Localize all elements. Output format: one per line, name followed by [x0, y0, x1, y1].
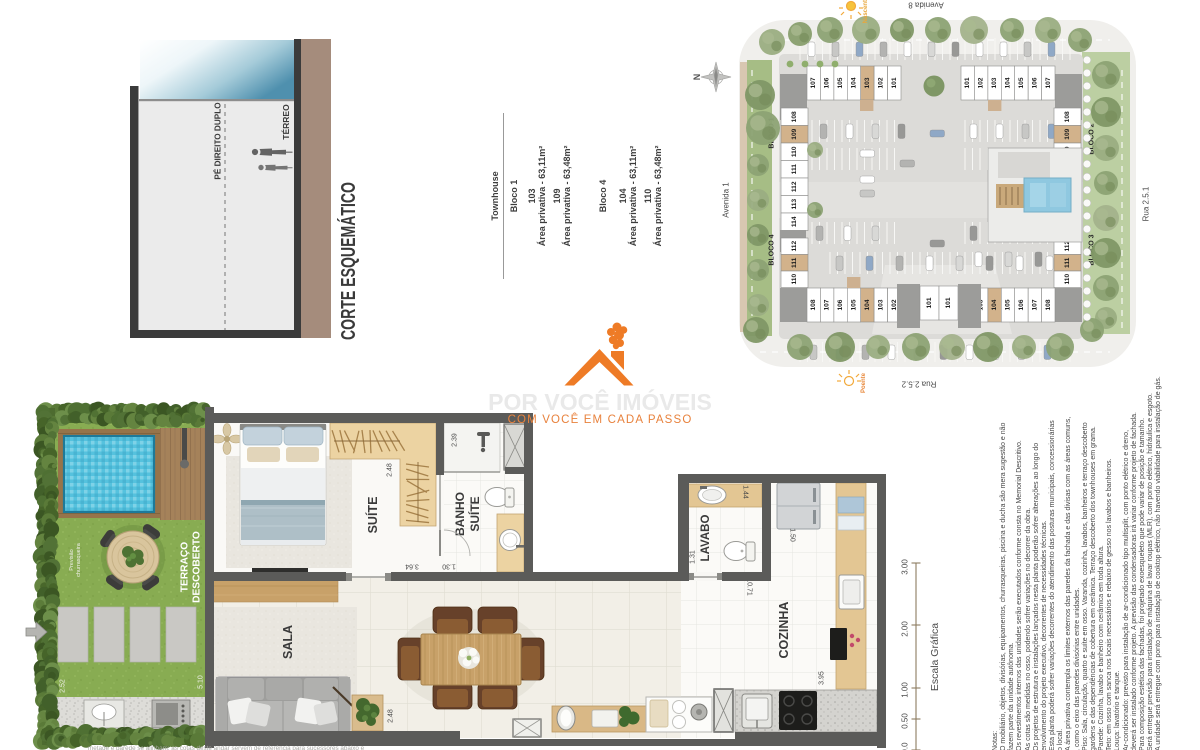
svg-text:1.30: 1.30 — [442, 563, 456, 570]
svg-text:104: 104 — [1005, 77, 1012, 88]
svg-text:101: 101 — [926, 297, 933, 308]
svg-text:105: 105 — [1005, 299, 1012, 310]
svg-text:metade e parede se alinham; as: metade e parede se alinham; as cotas des… — [88, 745, 365, 750]
svg-text:102: 102 — [877, 77, 884, 88]
svg-text:0.50: 0.50 — [901, 713, 910, 729]
svg-text:102: 102 — [978, 77, 985, 88]
svg-text:101: 101 — [891, 77, 898, 88]
svg-text:109: 109 — [1064, 128, 1071, 139]
svg-text:105: 105 — [1018, 77, 1025, 88]
svg-text:Rua 2.5.2: Rua 2.5.2 — [901, 380, 936, 389]
svg-text:111: 111 — [1064, 257, 1071, 268]
svg-text:Poente: Poente — [861, 372, 867, 393]
svg-text:107: 107 — [810, 77, 817, 88]
svg-text:Avenida 1: Avenida 1 — [722, 182, 731, 218]
svg-text:112: 112 — [791, 181, 798, 192]
svg-text:103: 103 — [877, 299, 884, 310]
svg-text:3.00: 3.00 — [901, 559, 910, 575]
svg-text:SUÍTE: SUÍTE — [365, 497, 380, 534]
svg-text:104: 104 — [864, 299, 871, 310]
svg-text:1.00: 1.00 — [901, 682, 910, 698]
svg-text:SALA: SALA — [281, 625, 295, 659]
svg-text:103: 103 — [864, 77, 871, 88]
svg-text:106: 106 — [1031, 77, 1038, 88]
svg-text:110: 110 — [791, 146, 798, 157]
svg-text:111: 111 — [791, 257, 798, 268]
svg-text:Previsão: Previsão — [69, 549, 75, 570]
svg-text:110: 110 — [1064, 274, 1071, 285]
svg-text:105: 105 — [837, 77, 844, 88]
svg-text:TÉRREO: TÉRREO — [281, 104, 291, 140]
svg-text:DESCOBERTO: DESCOBERTO — [192, 531, 203, 603]
svg-text:110: 110 — [791, 274, 798, 285]
svg-text:TERRAÇO: TERRAÇO — [180, 542, 191, 592]
svg-text:108: 108 — [1045, 299, 1052, 310]
svg-text:104: 104 — [851, 77, 858, 88]
svg-text:113: 113 — [791, 199, 798, 210]
svg-text:SUÍTE: SUÍTE — [467, 496, 482, 531]
svg-text:106: 106 — [1018, 299, 1025, 310]
svg-text:108: 108 — [791, 111, 798, 122]
svg-text:LAVABO: LAVABO — [700, 515, 712, 562]
svg-text:1.31: 1.31 — [690, 550, 697, 564]
svg-text:101: 101 — [945, 297, 952, 308]
svg-text:0.0: 0.0 — [901, 742, 910, 750]
svg-text:PÉ DIREITO DUPLO: PÉ DIREITO DUPLO — [213, 102, 223, 180]
svg-text:111: 111 — [791, 164, 798, 175]
svg-text:Nascente: Nascente — [863, 0, 869, 23]
svg-text:Avenida 8: Avenida 8 — [908, 1, 944, 10]
svg-text:1.50: 1.50 — [789, 528, 796, 542]
svg-text:108: 108 — [810, 299, 817, 310]
svg-text:104: 104 — [991, 299, 998, 310]
svg-text:106: 106 — [824, 77, 831, 88]
svg-text:Escala Gráfica: Escala Gráfica — [929, 623, 941, 691]
svg-text:107: 107 — [1031, 299, 1038, 310]
svg-text:BLOCO 4: BLOCO 4 — [769, 234, 776, 265]
svg-text:2.39: 2.39 — [452, 433, 459, 447]
svg-text:106: 106 — [837, 299, 844, 310]
svg-text:109: 109 — [791, 128, 798, 139]
svg-text:112: 112 — [791, 241, 798, 252]
svg-text:COZINHA: COZINHA — [777, 602, 791, 659]
svg-text:105: 105 — [851, 299, 858, 310]
svg-text:108: 108 — [1064, 111, 1071, 122]
svg-text:3.64: 3.64 — [405, 563, 419, 570]
svg-text:3.95: 3.95 — [819, 671, 826, 685]
svg-text:5.10: 5.10 — [198, 675, 205, 689]
svg-text:2.00: 2.00 — [901, 621, 910, 637]
svg-text:2.48: 2.48 — [387, 463, 394, 477]
svg-text:1.44: 1.44 — [742, 485, 749, 499]
svg-text:103: 103 — [991, 77, 998, 88]
svg-text:114: 114 — [791, 216, 798, 227]
svg-text:2.52: 2.52 — [60, 679, 67, 693]
svg-text:107: 107 — [1045, 77, 1052, 88]
svg-text:Rua 2.5.1: Rua 2.5.1 — [1142, 186, 1151, 221]
svg-text:churrasqueira: churrasqueira — [76, 542, 82, 577]
svg-text:N: N — [692, 74, 702, 81]
svg-text:101: 101 — [964, 77, 971, 88]
svg-text:2.48: 2.48 — [388, 709, 395, 723]
svg-text:107: 107 — [824, 299, 831, 310]
svg-text:102: 102 — [891, 299, 898, 310]
svg-text:CORTE ESQUEMÁTICO: CORTE ESQUEMÁTICO — [337, 182, 360, 340]
svg-text:BANHO: BANHO — [453, 492, 467, 536]
